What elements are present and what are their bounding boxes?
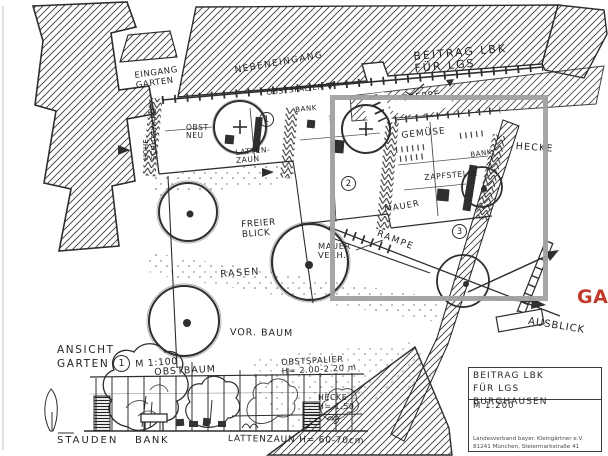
parcel-1-marker: 1 [259, 112, 274, 127]
scanned-plan-page: EINGANG GARTEN NEBENEINGANG BEITRAG LBK … [0, 0, 608, 456]
label-obst-neu: OBST NEU [186, 124, 209, 141]
label-obstspalier-height: OBSTSPALIER H= 2.00-2.20 m [281, 354, 357, 376]
highlight-selection-box [330, 95, 548, 301]
label-hecke-height: HECKE H= 1.50 [318, 394, 354, 411]
titleblock-org-line2: 81241 München, Steiermarkstraße 41 [473, 444, 597, 451]
title-block: BEITRAG LBK FÜR LGS BURGHAUSEN M 1:200 L… [468, 367, 602, 452]
label-wall-left: HOHE SCHUTZWAND [143, 108, 158, 160]
elevation-title-line1: ANSICHT [57, 345, 115, 357]
label-lattenzaun: LATTEN- ZAUN [235, 146, 272, 166]
elevation-bench [141, 414, 167, 422]
elevation-view-marker: 1 [113, 355, 130, 372]
titleblock-org-line1: Landesverband bayer. Kleingärtner e.V. [473, 436, 597, 443]
label-stauden: STAUDEN [57, 435, 118, 446]
titleblock-line1: BEITRAG LBK [473, 370, 597, 383]
titleblock-signature-space [473, 411, 597, 435]
label-bank-elevation: BANK [135, 435, 169, 446]
label-vor-baum: VOR. BAUM [230, 328, 293, 340]
label-freier-blick: FREIER BLICK [241, 219, 277, 241]
ga-crop-label: GA [577, 286, 608, 308]
elevation-title-line2: GARTEN [57, 359, 109, 371]
